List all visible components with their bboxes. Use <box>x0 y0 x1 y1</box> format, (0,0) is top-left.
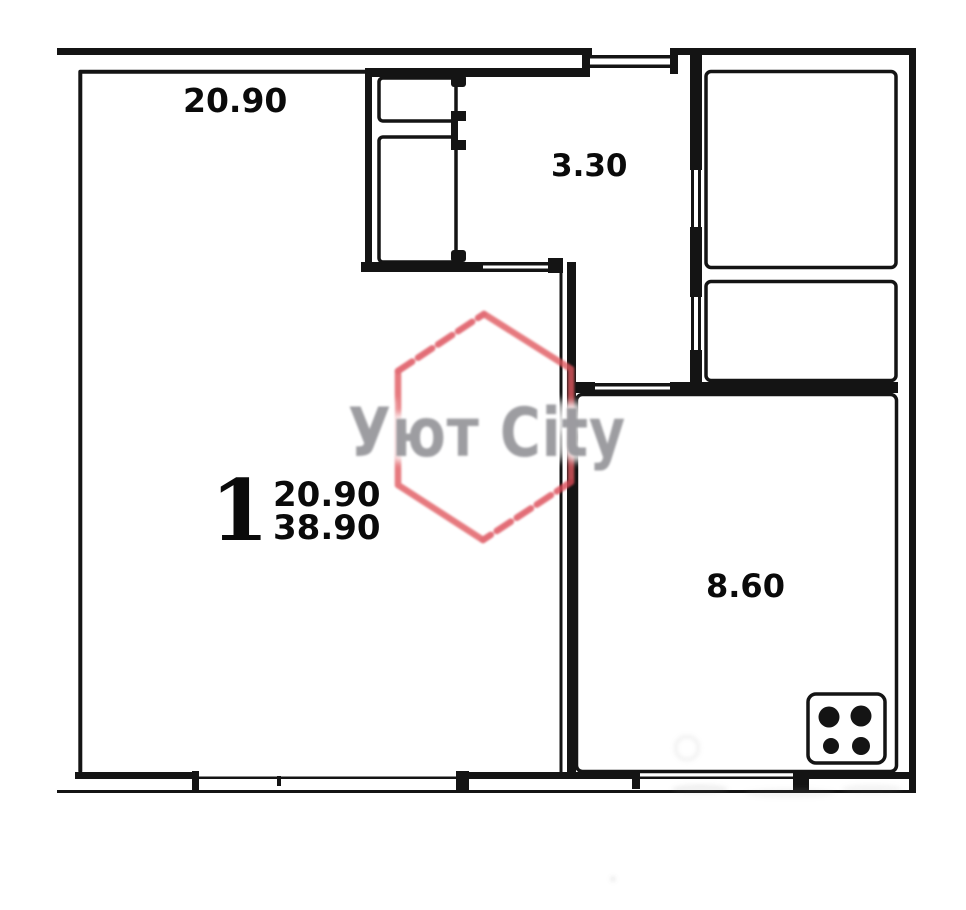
living-room <box>80 68 372 771</box>
wall-top-left-segment <box>57 48 592 55</box>
living-room-right-wall-upper <box>365 68 372 268</box>
watermark-text: Уют City <box>348 394 626 473</box>
door-jamb-right <box>670 48 678 74</box>
partition-thick-line <box>567 262 576 773</box>
hallway-right-wall <box>690 55 702 385</box>
kitchen-door-leaf-line <box>595 390 670 394</box>
hallway-top-wall <box>367 68 583 77</box>
door-leaf-line <box>590 65 670 69</box>
window-post <box>456 771 469 791</box>
partition-inner-line <box>560 262 563 773</box>
kitchen-area-label: 8.60 <box>706 567 785 605</box>
total-area-label: 38.90 <box>273 508 381 548</box>
window-post <box>632 772 640 789</box>
closet-upper-outline <box>379 78 456 121</box>
watermark: Уют City Уют City <box>348 314 626 540</box>
window-mullion <box>277 776 281 786</box>
stove-burner <box>823 738 839 754</box>
partition-wall-living-kitchen <box>560 262 577 773</box>
small-room-top-outline <box>706 72 896 268</box>
wall-segment <box>573 382 595 393</box>
closet-door-hinge <box>451 250 466 262</box>
closet-door-hinge <box>451 75 466 87</box>
door-jamb-left <box>582 48 590 77</box>
door-leaf-line <box>483 269 550 273</box>
living-room-outline <box>80 72 368 771</box>
door-leaf-line <box>691 297 694 350</box>
entrance-door <box>582 48 678 77</box>
wall-segment <box>670 382 898 393</box>
artifact-smudge <box>842 784 902 794</box>
artifact-smudge <box>672 784 728 794</box>
wall-segment <box>690 55 702 170</box>
stove-body <box>808 694 885 763</box>
stove-burner <box>852 737 870 755</box>
door-leaf-line <box>698 297 701 350</box>
bottom-wall-and-windows <box>75 771 916 791</box>
floor-plan-page: Уют City Уют City 20.90 3.30 8.60 1 20.9… <box>0 0 966 910</box>
wall-segment <box>690 350 702 385</box>
window-living-room <box>192 771 469 791</box>
stove-burner <box>851 706 872 727</box>
door-leaf-line <box>483 262 550 266</box>
window-glass-line <box>637 777 797 780</box>
closet-partition-flange <box>458 140 466 150</box>
stove-icon <box>808 694 885 763</box>
door-living-hallway <box>483 258 563 273</box>
hallway-bottom-wall <box>573 382 898 393</box>
apartment-summary: 1 20.90 38.90 <box>211 461 381 560</box>
closet-lower-outline <box>379 137 456 262</box>
closet-block <box>361 68 583 272</box>
wall-segment <box>463 772 637 779</box>
window-post <box>192 771 199 791</box>
small-room-bottom-outline <box>706 282 896 381</box>
floor-plan: Уют City Уют City 20.90 3.30 8.60 1 20.9… <box>0 0 966 910</box>
door-leaf-line <box>590 55 670 59</box>
kitchen-door-leaf-line <box>595 383 670 387</box>
artifact-smudge <box>676 737 699 760</box>
window-post <box>793 771 809 791</box>
door-leaf-line <box>691 170 694 227</box>
room-count-label: 1 <box>211 461 269 560</box>
living-room-area-label: 20.90 <box>183 81 287 120</box>
closet-partition-flange <box>458 111 466 121</box>
hallway-area-label: 3.30 <box>551 148 628 184</box>
stove-burner <box>819 707 840 728</box>
artifact-smudge <box>745 788 835 798</box>
wall-right-outer <box>909 48 916 792</box>
wall-segment <box>75 772 192 779</box>
window-glass-line <box>192 777 463 780</box>
door-leaf-line <box>698 170 701 227</box>
closet-partition-cap <box>451 111 458 150</box>
wall-segment <box>797 772 916 779</box>
wall-top-right-segment <box>678 48 916 55</box>
wall-segment <box>690 227 702 297</box>
artifact-dot <box>611 877 616 882</box>
